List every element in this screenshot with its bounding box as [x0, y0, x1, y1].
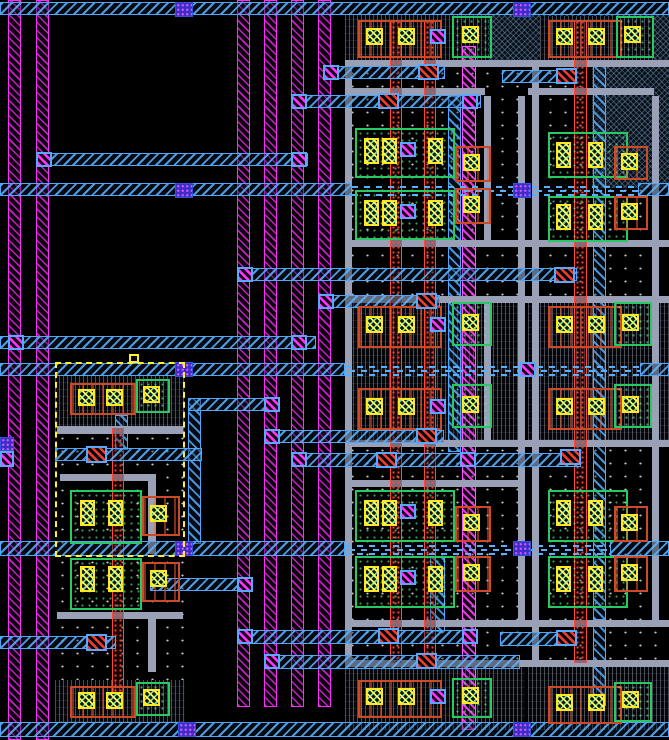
- diffusion-contact: [366, 398, 383, 415]
- metal3-tracks: [345, 545, 610, 555]
- via2-stack: [178, 722, 196, 737]
- diffusion-contact: [624, 26, 641, 43]
- via2-stack: [175, 2, 193, 17]
- diffusion-contact: [366, 316, 383, 333]
- via-contact: [237, 629, 253, 644]
- diffusion-contact-tall: [556, 566, 571, 592]
- via-contact: [430, 29, 446, 44]
- diffusion-contact: [366, 688, 383, 705]
- via2-stack: [513, 2, 531, 17]
- diffusion-contact: [463, 564, 480, 581]
- diffusion-contact: [463, 514, 480, 531]
- metal2-rail: [610, 541, 669, 556]
- diffusion-contact: [622, 396, 639, 413]
- diffusion-contact-tall: [364, 500, 379, 526]
- diffusion-contact-tall: [382, 500, 397, 526]
- via-contact: [0, 451, 14, 467]
- via-contact: [400, 142, 416, 157]
- poly-contact: [554, 267, 575, 283]
- via-contact: [323, 65, 339, 80]
- via-contact: [291, 152, 307, 167]
- via-contact: [8, 335, 24, 350]
- diffusion-contact: [398, 316, 415, 333]
- via-contact: [400, 570, 416, 585]
- metal2-rail: [237, 268, 577, 281]
- metal2-rail: [264, 655, 520, 669]
- diffusion-contact-tall: [364, 138, 379, 164]
- metal2-rail: [36, 153, 308, 166]
- poly-contact: [556, 68, 577, 84]
- diffusion-contact-tall: [588, 566, 603, 592]
- diffusion-contact: [588, 694, 605, 711]
- diffusion-contact: [621, 514, 638, 531]
- poly-contact: [556, 630, 577, 646]
- poly-contact: [376, 452, 397, 468]
- diffusion-contact: [463, 196, 480, 213]
- diffusion-contact-tall: [382, 566, 397, 592]
- diffusion-contact: [150, 570, 167, 587]
- poly-contact: [378, 628, 399, 644]
- poly-contact: [416, 293, 437, 309]
- via-contact: [264, 397, 280, 412]
- poly-contact: [86, 634, 107, 651]
- diffusion-contact-tall: [588, 204, 603, 230]
- metal1-stripe: [264, 0, 277, 707]
- selection-box[interactable]: [55, 362, 185, 557]
- diffusion-contact: [398, 688, 415, 705]
- diffusion-contact-tall: [428, 500, 443, 526]
- diffusion-contact: [621, 153, 638, 170]
- diffusion-contact: [556, 694, 573, 711]
- diffusion-contact-tall: [588, 500, 603, 526]
- via-contact: [462, 629, 478, 644]
- metal2-rail: [291, 453, 581, 467]
- diffusion-contact: [588, 398, 605, 415]
- metal2-rail: [0, 722, 669, 737]
- via-contact: [520, 362, 536, 377]
- diffusion-contact-tall: [382, 138, 397, 164]
- via-contact: [400, 504, 416, 519]
- poly-contact: [416, 428, 437, 444]
- diffusion-contact: [621, 564, 638, 581]
- via-contact: [291, 452, 307, 467]
- via-contact: [36, 152, 52, 167]
- metal2-rail: [0, 336, 316, 349]
- via2-stack: [175, 183, 193, 198]
- diffusion-contact: [462, 396, 479, 413]
- diffusion-contact: [622, 691, 639, 708]
- diffusion-contact: [556, 28, 573, 45]
- via2-stack: [513, 722, 531, 737]
- diffusion-contact: [398, 28, 415, 45]
- diffusion-contact-tall: [556, 204, 571, 230]
- metal2-rail: [638, 183, 669, 196]
- via-contact: [462, 94, 478, 109]
- metal-rail-gray: [528, 88, 654, 95]
- metal2-rail: [502, 70, 564, 83]
- diffusion-contact: [366, 28, 383, 45]
- metal-rail-gray: [345, 60, 352, 667]
- diffusion-contact: [588, 28, 605, 45]
- via2-stack: [513, 183, 531, 198]
- via-contact: [291, 335, 307, 350]
- diffusion-contact: [398, 398, 415, 415]
- poly-contact: [418, 64, 439, 80]
- via2-stack: [513, 541, 531, 556]
- via-contact: [237, 577, 253, 592]
- diffusion-contact-tall: [428, 200, 443, 226]
- diffusion-contact-tall: [556, 142, 571, 168]
- via-contact: [460, 452, 476, 467]
- metal1-stripe: [237, 0, 250, 707]
- diffusion-contact-tall: [382, 200, 397, 226]
- via-contact: [430, 689, 446, 704]
- diffusion-contact: [143, 689, 160, 706]
- diffusion-contact: [621, 203, 638, 220]
- selection-handle[interactable]: [129, 354, 139, 363]
- layout-editor-canvas[interactable]: [0, 0, 669, 740]
- diffusion-contact: [78, 692, 95, 709]
- via-contact: [291, 94, 307, 109]
- poly-contact: [378, 93, 399, 109]
- poly-contact: [416, 653, 437, 669]
- diffusion-contact: [462, 314, 479, 331]
- diffusion-contact: [462, 26, 479, 43]
- diffusion-contact-tall: [556, 500, 571, 526]
- diffusion-contact: [463, 154, 480, 171]
- diffusion-contact-tall: [428, 566, 443, 592]
- metal3-tracks: [345, 366, 640, 376]
- via-contact: [400, 204, 416, 219]
- diffusion-contact-tall: [588, 142, 603, 168]
- via-contact: [264, 429, 280, 444]
- via-contact: [430, 317, 446, 332]
- diffusion-contact: [556, 398, 573, 415]
- metal2-rail: [0, 2, 669, 15]
- diffusion-contact-tall: [364, 566, 379, 592]
- diffusion-contact: [588, 316, 605, 333]
- metal-rail-gray: [148, 612, 156, 672]
- via-contact: [430, 399, 446, 414]
- metal2-rail: [237, 630, 477, 644]
- metal2-strap: [188, 398, 201, 544]
- poly-contact: [560, 449, 581, 465]
- diffusion-contact-tall: [428, 138, 443, 164]
- diffusion-contact: [106, 692, 123, 709]
- diffusion-contact-tall: [108, 566, 123, 592]
- metal2-rail: [640, 363, 669, 376]
- diffusion-contact: [462, 687, 479, 704]
- via2-stack: [0, 437, 14, 451]
- diffusion-contact: [622, 314, 639, 331]
- via-contact: [318, 294, 334, 309]
- via-contact: [264, 654, 280, 669]
- via-contact: [237, 267, 253, 282]
- diffusion-contact-tall: [364, 200, 379, 226]
- diffusion-contact-tall: [80, 566, 95, 592]
- diffusion-contact: [556, 316, 573, 333]
